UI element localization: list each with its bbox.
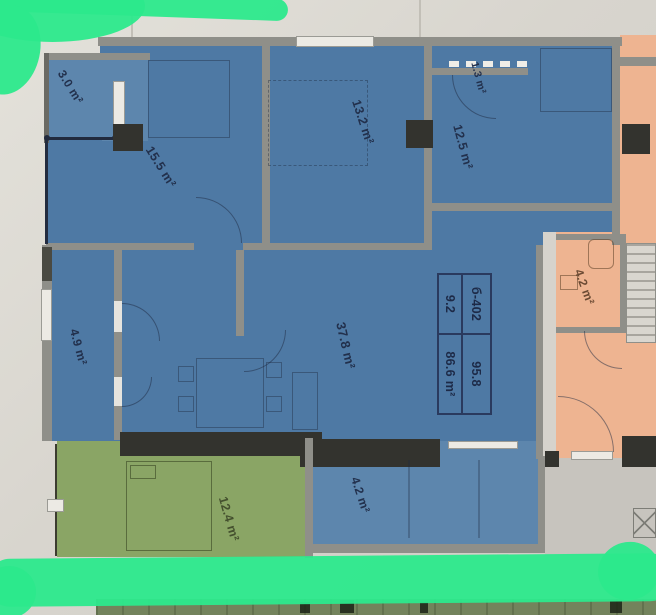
furniture-wardrobe bbox=[540, 48, 612, 112]
plan-fragment-mark bbox=[420, 602, 428, 613]
furniture-chair bbox=[266, 396, 282, 412]
unit-number: б-402 bbox=[462, 274, 491, 334]
window-top bbox=[296, 36, 374, 47]
boundary-line-left bbox=[45, 140, 48, 244]
plan-fragment-mark bbox=[610, 601, 622, 613]
balcony-bottom-wall bbox=[312, 544, 545, 553]
window-left bbox=[41, 289, 52, 341]
furniture-dashed bbox=[268, 80, 368, 166]
structural-column bbox=[406, 120, 433, 148]
living-room-right-wall bbox=[536, 245, 543, 459]
neighbor-window bbox=[571, 451, 613, 460]
balcony-right-wall bbox=[538, 456, 545, 548]
unit-info-table: б-402 95.8 9.2 86.6 m² bbox=[437, 273, 492, 415]
furniture-bed bbox=[148, 60, 230, 138]
door-opening bbox=[114, 301, 122, 332]
door-opening bbox=[114, 377, 122, 406]
furniture-chair bbox=[178, 396, 194, 412]
balcony-door-window bbox=[448, 441, 518, 449]
wall-dark-segment bbox=[545, 451, 559, 467]
balcony-separator-wall bbox=[300, 439, 440, 467]
living-room-wall bbox=[236, 250, 244, 336]
closet-dashed-opening bbox=[449, 61, 528, 67]
furniture-cabinet bbox=[292, 372, 318, 430]
wall-dark-segment bbox=[42, 247, 52, 281]
floorplan-photo: 3.0 m² 15.5 m² 13.2 m² 1.3 m² 12.5 m² 4.… bbox=[0, 0, 656, 615]
unit-info-table-grid: б-402 95.8 9.2 86.6 m² bbox=[437, 273, 492, 415]
balcony-left-wall bbox=[44, 53, 49, 143]
unit-living-area: 86.6 m² bbox=[438, 334, 462, 414]
party-wall-right bbox=[612, 38, 620, 245]
balcony-railing bbox=[46, 137, 116, 140]
common-floor-area bbox=[545, 458, 656, 556]
neighbor-wall-top bbox=[620, 57, 656, 66]
interior-wall bbox=[46, 243, 194, 250]
furniture-pillow bbox=[130, 465, 156, 479]
balcony-separator-wall bbox=[120, 432, 322, 456]
balcony-top-wall bbox=[44, 53, 150, 60]
stairwell bbox=[626, 243, 656, 343]
unit-total-area: 95.8 bbox=[462, 334, 491, 414]
structural-column bbox=[113, 124, 143, 151]
green-room-right-wall bbox=[305, 438, 313, 558]
interior-wall bbox=[243, 243, 432, 250]
structural-column bbox=[622, 124, 650, 154]
balcony-window bbox=[113, 81, 125, 125]
furniture-table bbox=[196, 358, 264, 428]
fixture-toilet bbox=[588, 239, 614, 269]
balcony-partition-line bbox=[478, 460, 480, 538]
unit-secondary-value: 9.2 bbox=[438, 274, 462, 334]
bedroom-right-bottom-wall bbox=[432, 203, 620, 211]
elevator-shaft bbox=[633, 508, 656, 538]
paper-fold-line bbox=[419, 0, 421, 42]
wall-dark-segment bbox=[622, 436, 656, 467]
corridor-strip bbox=[543, 232, 556, 460]
green-room-door-symbol bbox=[47, 499, 64, 512]
bedroom-left-lower-area bbox=[46, 140, 102, 245]
highlighter-stroke-bottom bbox=[0, 553, 656, 607]
hallway-wall bbox=[114, 250, 122, 440]
balcony-partition-line bbox=[408, 460, 410, 538]
furniture-chair bbox=[178, 366, 194, 382]
furniture-chair bbox=[266, 362, 282, 378]
